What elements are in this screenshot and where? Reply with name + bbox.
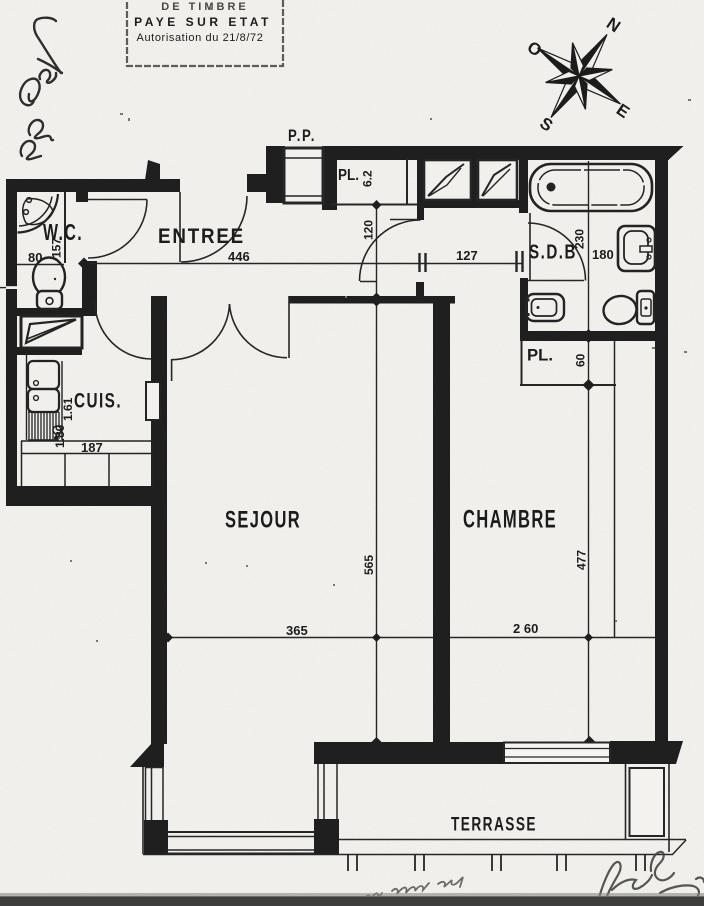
svg-text:120: 120 bbox=[362, 220, 376, 240]
svg-text:CHAMBRE: CHAMBRE bbox=[463, 506, 557, 534]
svg-text:80: 80 bbox=[28, 250, 42, 265]
svg-text:365: 365 bbox=[286, 623, 308, 638]
svg-text:PL.: PL. bbox=[527, 347, 553, 365]
svg-text:1.80: 1.80 bbox=[53, 424, 67, 448]
svg-text:1.61: 1.61 bbox=[61, 397, 75, 421]
svg-text:Autorisation du 21/8/72: Autorisation du 21/8/72 bbox=[137, 32, 264, 44]
svg-text:6.2: 6.2 bbox=[361, 170, 375, 187]
svg-text:180: 180 bbox=[592, 247, 614, 262]
svg-text:P.P.: P.P. bbox=[288, 127, 316, 145]
svg-text:DE TIMBRE: DE TIMBRE bbox=[161, 1, 249, 13]
svg-text:127: 127 bbox=[456, 248, 478, 263]
svg-text:60: 60 bbox=[574, 353, 588, 367]
svg-text:SEJOUR: SEJOUR bbox=[225, 507, 301, 534]
svg-text:PAYE SUR ETAT: PAYE SUR ETAT bbox=[134, 15, 272, 29]
svg-text:TERRASSE: TERRASSE bbox=[451, 815, 537, 836]
svg-text:230: 230 bbox=[573, 229, 587, 249]
svg-text:565: 565 bbox=[362, 555, 376, 575]
svg-text:157: 157 bbox=[50, 238, 64, 258]
svg-text:S.D.B: S.D.B bbox=[529, 242, 577, 264]
svg-text:ENTREE: ENTREE bbox=[158, 225, 245, 248]
svg-text:187: 187 bbox=[81, 440, 103, 455]
svg-text:2 60: 2 60 bbox=[513, 621, 538, 636]
svg-text:477: 477 bbox=[575, 550, 589, 570]
svg-text:PL.: PL. bbox=[338, 167, 359, 184]
svg-text:446: 446 bbox=[228, 249, 250, 264]
svg-text:CUIS.: CUIS. bbox=[74, 389, 122, 413]
